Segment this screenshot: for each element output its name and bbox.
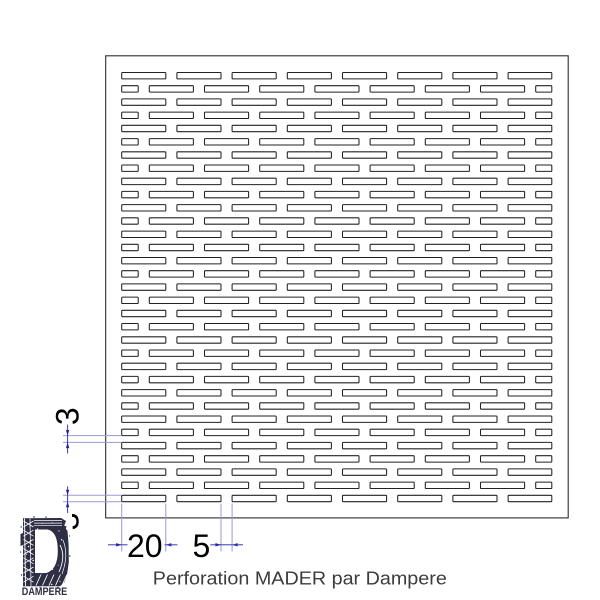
- svg-text:5: 5: [193, 528, 211, 564]
- svg-text:20: 20: [127, 528, 163, 564]
- svg-text:DAMPERE: DAMPERE: [22, 586, 68, 598]
- svg-text:3: 3: [50, 407, 86, 425]
- svg-text:Perforation MADER par Dampere: Perforation MADER par Dampere: [153, 568, 447, 589]
